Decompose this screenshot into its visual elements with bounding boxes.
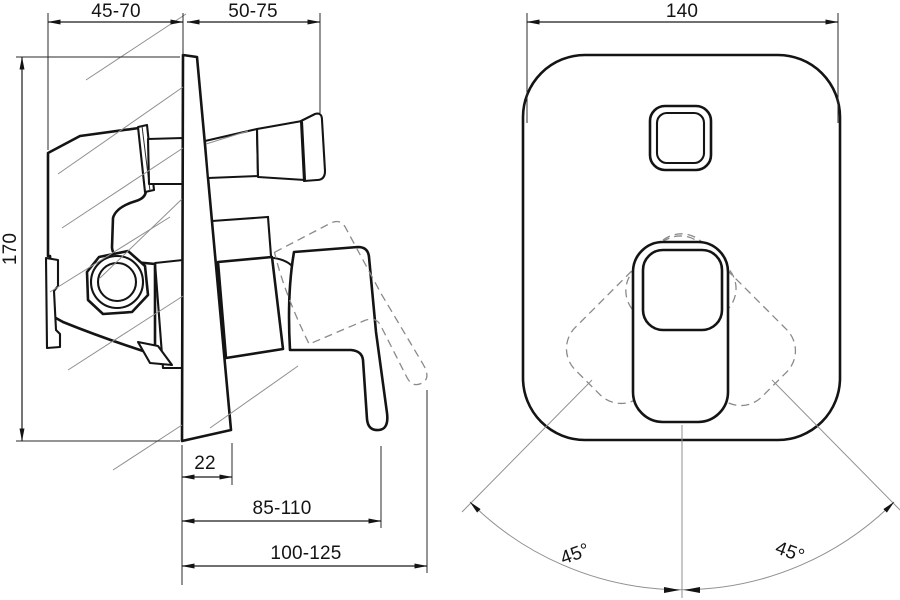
arc-center-arrow-right bbox=[684, 587, 700, 593]
wall-plate-side bbox=[182, 55, 231, 441]
lever-hub-side bbox=[218, 257, 283, 358]
mixer-installation-diagram: 45-70 50-75 170 22 85-110 100-125 bbox=[0, 0, 900, 600]
dim-label-plate-width: 140 bbox=[666, 1, 698, 22]
hub-joint-arc bbox=[274, 258, 293, 267]
lever-handle-front bbox=[633, 242, 728, 422]
dim-label-body-depth: 45-70 bbox=[91, 1, 141, 22]
drawing-sheet: 45-70 50-75 170 22 85-110 100-125 bbox=[0, 0, 900, 600]
lever-handle-side bbox=[289, 247, 387, 430]
front-view: 140 45° 45° bbox=[462, 1, 900, 598]
dimension-lever-reach-max: 100-125 bbox=[182, 543, 427, 566]
dim-label-swing-right: 45° bbox=[772, 538, 807, 568]
arc-center-arrow-left bbox=[664, 587, 680, 593]
dimension-plate-width: 140 bbox=[527, 1, 838, 22]
dimension-body-depth: 45-70 bbox=[48, 1, 183, 22]
diverter-knob-side bbox=[257, 121, 305, 180]
dim-label-plate-bottom-width: 22 bbox=[194, 453, 216, 474]
side-view: 45-70 50-75 170 22 85-110 100-125 bbox=[0, 1, 430, 585]
dim-label-plate-height: 170 bbox=[0, 233, 21, 265]
diverter-stem-left bbox=[148, 138, 183, 184]
dimension-handle-depth: 50-75 bbox=[187, 1, 320, 22]
dimension-plate-bottom-width: 22 bbox=[182, 453, 232, 477]
dim-label-lever-reach-min: 85-110 bbox=[253, 498, 312, 519]
dim-label-swing-left: 45° bbox=[558, 540, 593, 570]
dimension-lever-reach-min: 85-110 bbox=[182, 498, 381, 521]
handle-sleeve-side bbox=[212, 217, 271, 256]
dim-label-lever-reach-max: 100-125 bbox=[270, 543, 341, 564]
diverter-knob-front-inner bbox=[657, 113, 704, 163]
dim-label-handle-depth: 50-75 bbox=[228, 1, 278, 22]
dimension-plate-height: 170 bbox=[0, 57, 22, 441]
